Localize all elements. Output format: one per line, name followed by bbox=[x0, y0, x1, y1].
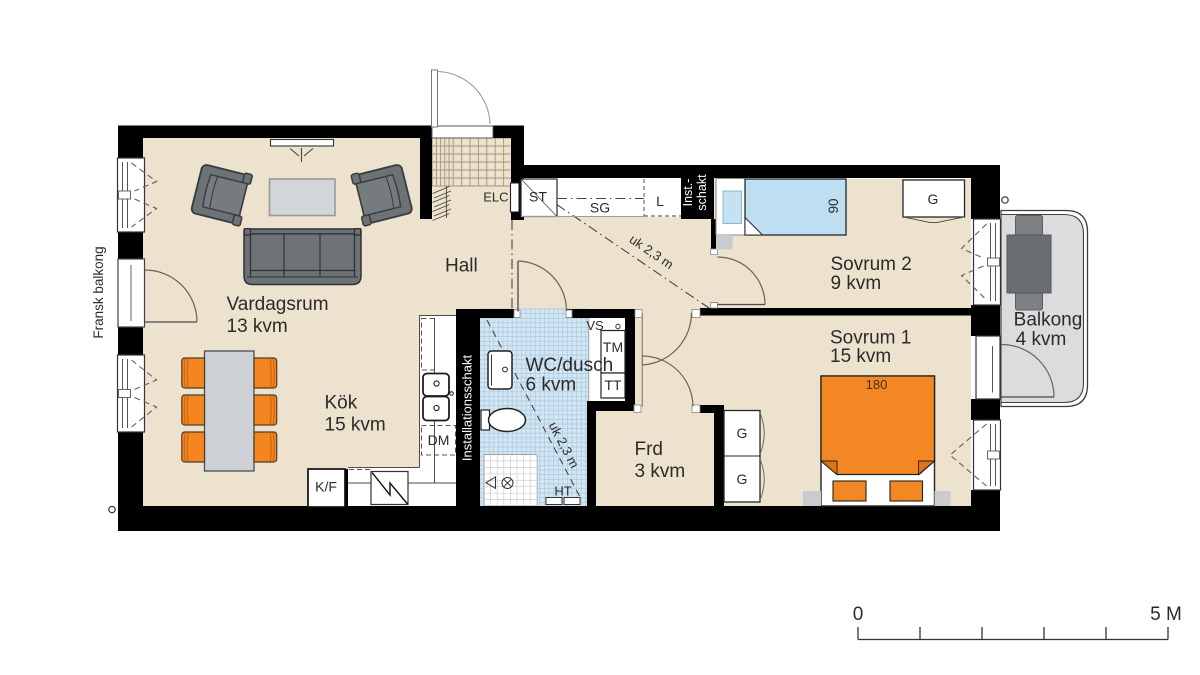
svg-text:Installationsschakt: Installationsschakt bbox=[460, 355, 475, 462]
svg-text:15 kvm: 15 kvm bbox=[325, 415, 386, 436]
svg-text:ELC: ELC bbox=[483, 190, 508, 205]
svg-text:180: 180 bbox=[866, 377, 888, 392]
svg-text:HT: HT bbox=[554, 484, 571, 499]
svg-text:Fransk balkong: Fransk balkong bbox=[91, 246, 106, 338]
svg-text:G: G bbox=[737, 425, 748, 441]
svg-text:K/F: K/F bbox=[315, 479, 337, 495]
svg-text:0: 0 bbox=[853, 604, 864, 625]
svg-text:6 kvm: 6 kvm bbox=[526, 375, 577, 396]
svg-text:Sovrum 2: Sovrum 2 bbox=[831, 254, 912, 275]
svg-text:L: L bbox=[656, 193, 664, 209]
svg-text:schakt: schakt bbox=[695, 174, 709, 211]
svg-text:Inst.-: Inst.- bbox=[681, 179, 695, 207]
svg-text:TT: TT bbox=[604, 377, 622, 393]
svg-text:9 kvm: 9 kvm bbox=[831, 273, 882, 294]
svg-text:3 kvm: 3 kvm bbox=[635, 461, 686, 482]
svg-text:Hall: Hall bbox=[445, 256, 478, 277]
svg-text:SG: SG bbox=[590, 200, 610, 216]
svg-text:DM: DM bbox=[428, 432, 450, 448]
svg-text:Frd: Frd bbox=[635, 439, 664, 460]
svg-text:Vardagsrum: Vardagsrum bbox=[227, 294, 329, 315]
svg-text:G: G bbox=[737, 471, 748, 487]
svg-text:ST: ST bbox=[529, 189, 547, 205]
svg-text:Kök: Kök bbox=[325, 393, 358, 414]
svg-text:G: G bbox=[928, 191, 939, 207]
svg-text:WC/dusch: WC/dusch bbox=[526, 355, 614, 376]
svg-text:15 kvm: 15 kvm bbox=[830, 346, 891, 367]
svg-text:5 M: 5 M bbox=[1150, 604, 1182, 625]
svg-text:TM: TM bbox=[603, 339, 623, 355]
svg-text:Balkong: Balkong bbox=[1014, 310, 1083, 331]
svg-text:13 kvm: 13 kvm bbox=[227, 316, 288, 337]
svg-text:90: 90 bbox=[826, 198, 841, 213]
svg-text:4 kvm: 4 kvm bbox=[1016, 329, 1067, 350]
